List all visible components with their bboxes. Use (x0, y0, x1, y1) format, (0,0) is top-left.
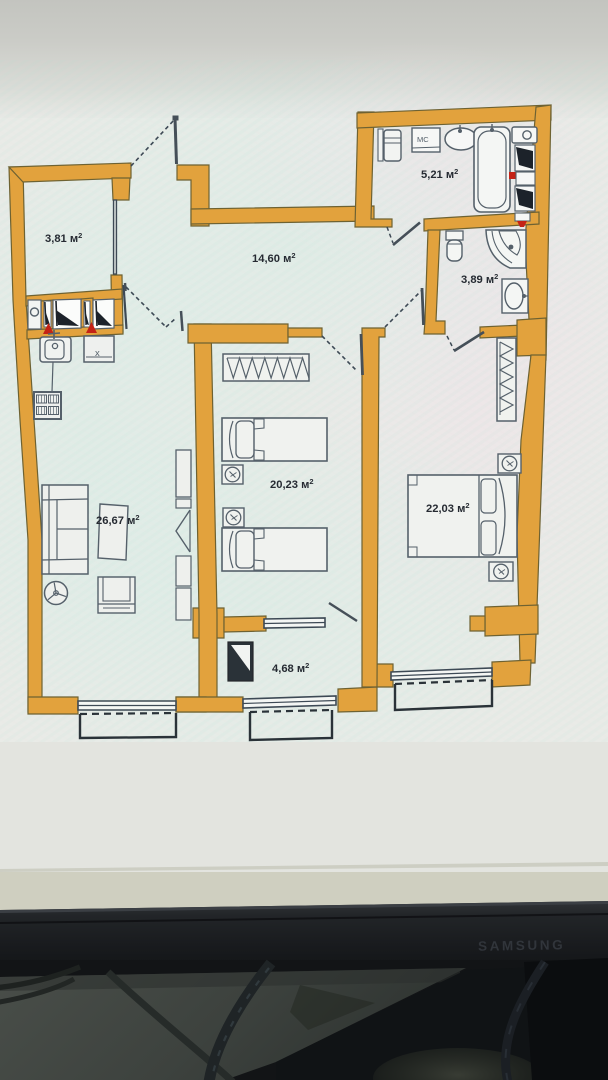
svg-text:3,81 м2: 3,81 м2 (45, 231, 82, 245)
svg-text:МС: МС (417, 135, 429, 144)
svg-text:26,67 м2: 26,67 м2 (96, 513, 140, 527)
svg-text:22,03 м2: 22,03 м2 (426, 501, 470, 515)
svg-text:20,23 м2: 20,23 м2 (270, 477, 314, 491)
svg-text:3,89 м2: 3,89 м2 (461, 272, 498, 286)
svg-text:14,60 м2: 14,60 м2 (252, 251, 296, 265)
svg-text:4,68 м2: 4,68 м2 (272, 661, 309, 675)
svg-text:5,21 м2: 5,21 м2 (421, 167, 458, 181)
svg-text:SAMSUNG: SAMSUNG (478, 937, 565, 954)
